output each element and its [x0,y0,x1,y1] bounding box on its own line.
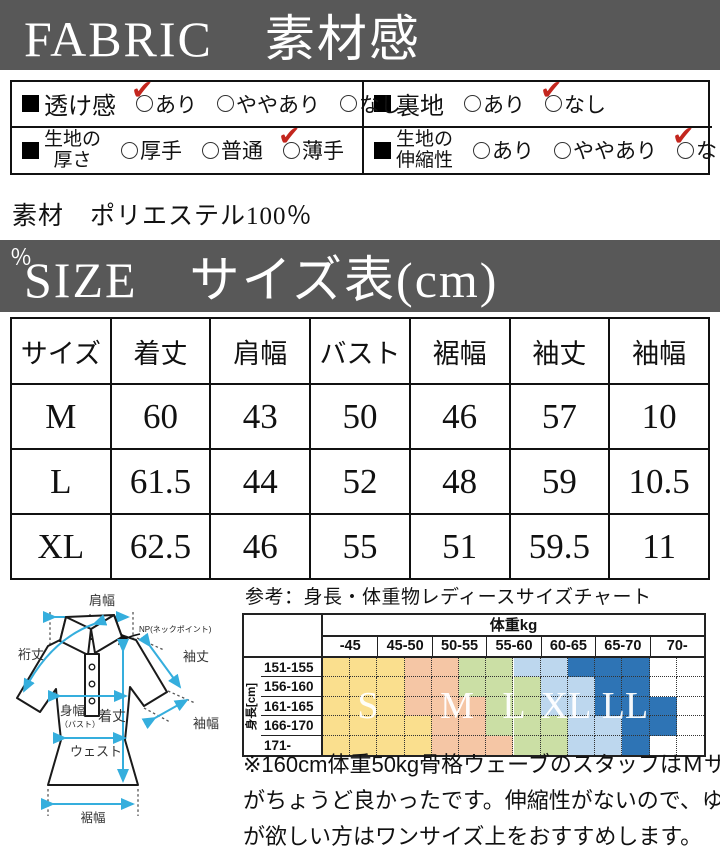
size-table-cell: 11 [609,514,709,579]
option-text: あり [483,89,525,119]
radio-circle-icon [121,142,138,159]
size-region-cell [541,658,568,677]
height-row-label: 151-155 [261,658,323,677]
size-region-cell [677,658,704,677]
size-region-cell [323,658,350,677]
size-banner-title: SIZE サイズ表(cm) [0,240,498,312]
height-row-label: 156-160 [261,677,323,696]
option-text: 薄手 [302,135,344,165]
sleeve-width-label: 袖幅 [193,716,219,731]
size-table-header-cell: 裾幅 [410,318,510,384]
size-region-cell [377,716,404,735]
sleeve-length-guide-bottom [168,691,195,703]
fabric-attribute-label-line: 生地の [396,129,453,150]
size-table-cell: 55 [310,514,410,579]
note-line: がちょうど良かったです。伸縮性がないので、ゆとり [243,783,715,819]
fabric-attribute-cell: 裏地あり✔なし [364,82,712,128]
size-letter: S [357,687,378,725]
button-icon [89,698,95,704]
size-region-cell [650,716,677,735]
option-unchecked: 厚手 [121,135,182,165]
size-table-header-row: サイズ着丈肩幅バスト裾幅袖丈袖幅 [11,318,709,384]
size-table-header-cell: 着丈 [111,318,211,384]
option-unchecked: あり [464,89,525,119]
stray-percent-text: ％ [10,240,32,272]
option-text: なし [564,89,606,119]
radio-circle-icon [545,95,562,112]
black-square-marker [374,142,391,159]
size-table-header-cell: サイズ [11,318,111,384]
size-region-cell [405,658,432,677]
size-region-cell [377,677,404,696]
option-unchecked: ややあり [217,89,320,119]
size-region-cell [677,716,704,735]
size-table-cell: M [11,384,111,449]
size-letter: L [502,687,525,725]
radio-circle-icon [202,142,219,159]
size-region-cell [323,697,350,716]
fabric-options: 厚手普通✔薄手 [101,135,344,165]
fabric-attribute-label-line: 伸縮性 [396,150,453,171]
size-region-cell [350,658,377,677]
np-label: NP(ネックポイント) [139,625,212,634]
size-region-cell [405,677,432,696]
size-table-row: XL62.546555159.511 [11,514,709,579]
weight-col-label: 65-70 [595,637,649,658]
size-region-cell [622,658,649,677]
radio-circle-icon [464,95,481,112]
option-text: あり [155,89,197,119]
size-table-header-cell: 袖幅 [609,318,709,384]
radio-circle-icon [554,142,571,159]
fabric-attribute-label-line: 裏地 [396,86,444,121]
size-region-cell [677,697,704,716]
body-width-label: 身幅 [60,703,85,718]
radio-circle-icon [283,142,300,159]
size-region-cell [459,658,486,677]
radio-circle-icon [217,95,234,112]
shoulder-label: 肩幅 [89,593,115,608]
size-region-cell [650,658,677,677]
radio-circle-icon [340,95,357,112]
size-banner: SIZE サイズ表(cm) [0,240,720,312]
button-icon [89,664,95,670]
fabric-attribute-label-line: 透け感 [44,86,116,121]
size-region-cell [432,658,459,677]
size-letter: XL [541,687,592,725]
fabric-attribute-label-line: 生地の [44,129,101,150]
product-info-image: FABRIC 素材感 透け感✔ありややありなし裏地あり✔なし生地の厚さ厚手普通✔… [0,0,720,861]
size-table-header-cell: バスト [310,318,410,384]
height-axis-title: 身長[cm] [244,658,261,755]
size-region-cell [677,677,704,696]
size-letter: LL [602,687,648,725]
note-line: ※160cm体重50kg骨格ウェーブのスタッフはＭサイズ [243,747,715,783]
size-region-cell [650,677,677,696]
size-table-cell: 50 [310,384,410,449]
reference-chart-caption: 参考：身長・体重物レディースサイズチャート [245,582,651,609]
size-table: サイズ着丈肩幅バスト裾幅袖丈袖幅M604350465710L61.5445248… [10,317,710,580]
option-checked: ✔薄手 [283,135,344,165]
length-label: 着丈 [98,708,126,724]
black-square-marker [22,95,39,112]
size-table-cell: 46 [210,514,310,579]
size-letter: M [440,687,474,725]
size-table-cell: 44 [210,449,310,514]
black-square-marker [22,142,39,159]
fabric-options: ありややあり✔なし [453,135,720,165]
chart-corner-cell [244,615,323,658]
weight-axis-title: 体重kg [323,615,704,637]
size-table-cell: 61.5 [111,449,211,514]
size-table-header-cell: 肩幅 [210,318,310,384]
size-table-cell: 51 [410,514,510,579]
size-table-cell: 59.5 [510,514,610,579]
option-text: なし [359,89,401,119]
size-region-cell [377,697,404,716]
size-region-cell [595,658,622,677]
size-region-cell [377,658,404,677]
hem-label: 裾幅 [80,810,105,825]
size-region-cell [568,658,595,677]
size-table-header-cell: 袖丈 [510,318,610,384]
yuki-label: 裄丈 [18,647,44,662]
option-unchecked: あり [473,135,534,165]
note-line: が欲しい方はワンサイズ上をおすすめします。 [243,819,715,855]
size-table-cell: 52 [310,449,410,514]
size-table-cell: 57 [510,384,610,449]
fabric-attribute-cell: 透け感✔ありややありなし [12,82,364,128]
bust-sub-label: （バスト） [60,720,100,729]
option-text: あり [492,135,534,165]
size-table-cell: 59 [510,449,610,514]
height-weight-size-chart: 体重kg-4545-5050-5555-6060-6565-7070-身長[cm… [242,613,706,757]
sleeve-length-label: 袖丈 [183,649,209,664]
option-unchecked: ややあり [554,135,657,165]
button-icon [89,681,95,687]
radio-circle-icon [136,95,153,112]
sleeve-width-guide-inner [144,708,170,722]
option-text: なし [696,135,720,165]
option-text: ややあり [573,135,657,165]
radio-circle-icon [677,142,694,159]
size-table-cell: 43 [210,384,310,449]
option-text: 厚手 [140,135,182,165]
option-unchecked: 普通 [202,135,263,165]
garment-measurement-diagram: 肩幅 裄丈 NP(ネックポイント) 袖丈 袖幅 身幅 （バスト） 着丈 [2,588,239,840]
size-table-cell: 10.5 [609,449,709,514]
size-region-cell [405,716,432,735]
size-region-cell [486,658,513,677]
height-row-label: 166-170 [261,716,323,735]
weight-col-label: 60-65 [541,637,595,658]
size-table-cell: XL [11,514,111,579]
size-region-cell [405,697,432,716]
fabric-attribute-cell: 生地の厚さ厚手普通✔薄手 [12,128,364,174]
weight-col-label: 55-60 [486,637,540,658]
fabric-attribute-label: 生地の伸縮性 [396,129,453,172]
fabric-attribute-cell: 生地の伸縮性ありややあり✔なし [364,128,712,174]
option-checked: ✔なし [677,135,720,165]
fabric-banner-title: FABRIC 素材感 [0,0,421,71]
weight-col-label: 45-50 [377,637,431,658]
fabric-attribute-label: 裏地 [396,86,444,121]
weight-col-label: 70- [650,637,704,658]
height-row-label: 161-165 [261,697,323,716]
radio-circle-icon [473,142,490,159]
option-checked: ✔なし [545,89,606,119]
option-text: ややあり [236,89,320,119]
option-text: 普通 [221,135,263,165]
size-table-cell: 46 [410,384,510,449]
fabric-options: ✔ありややありなし [116,89,401,119]
size-table-cell: 60 [111,384,211,449]
size-region-cell [650,697,677,716]
option-unchecked: なし [340,89,401,119]
size-table-cell: 62.5 [111,514,211,579]
staff-note: ※160cm体重50kg骨格ウェーブのスタッフはＭサイズ がちょうど良かったです… [243,747,715,855]
fabric-attribute-label: 生地の厚さ [44,129,101,172]
size-table-row: L61.54452485910.5 [11,449,709,514]
option-checked: ✔あり [136,89,197,119]
size-table-cell: 48 [410,449,510,514]
fabric-banner: FABRIC 素材感 [0,0,720,70]
size-table-cell: L [11,449,111,514]
size-region-cell [323,716,350,735]
size-table-cell: 10 [609,384,709,449]
size-table-row: M604350465710 [11,384,709,449]
size-region-cell [323,677,350,696]
size-region-cell [514,658,541,677]
weight-col-label: -45 [323,637,377,658]
fabric-options: あり✔なし [444,89,606,119]
waist-label: ウェスト [70,744,122,759]
fabric-attribute-label-line: 厚さ [44,150,101,171]
material-text: 素材 ポリエステル100％ [12,196,313,232]
fabric-attribute-table: 透け感✔ありややありなし裏地あり✔なし生地の厚さ厚手普通✔薄手生地の伸縮性ありや… [10,80,710,175]
weight-col-label: 50-55 [432,637,486,658]
fabric-attribute-label: 透け感 [44,86,116,121]
sleeve-width-arrow [155,700,187,718]
